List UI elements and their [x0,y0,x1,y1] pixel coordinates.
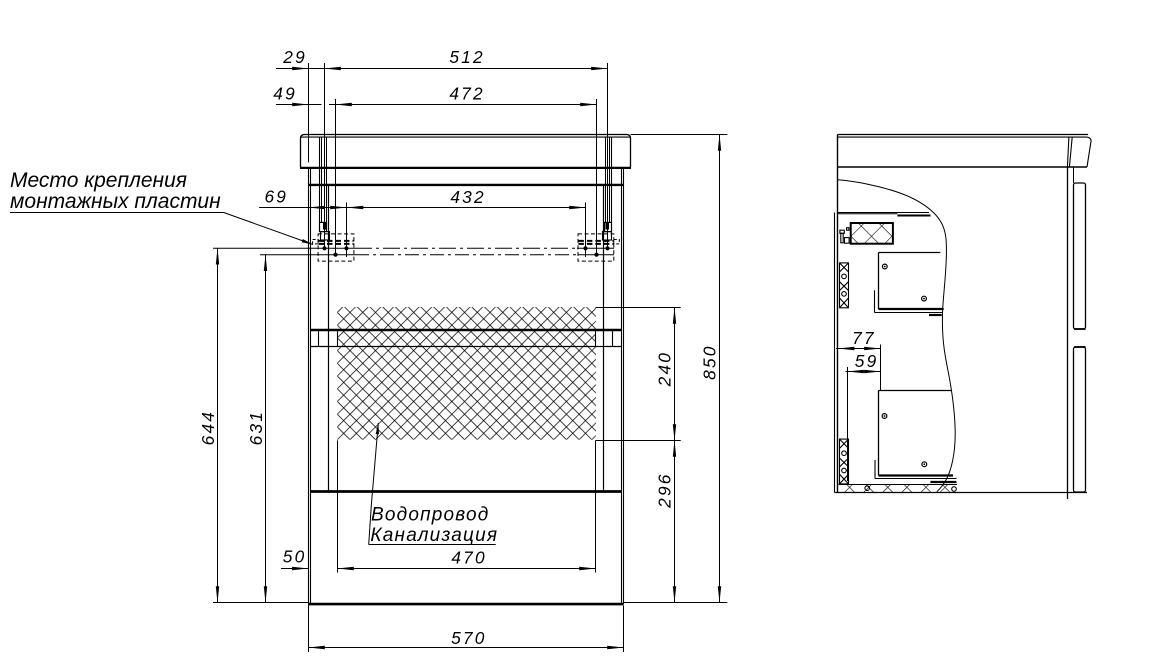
svg-text:монтажных пластин: монтажных пластин [10,190,221,213]
svg-text:432: 432 [450,187,485,207]
svg-text:Место крепления: Место крепления [10,169,187,192]
svg-text:570: 570 [451,628,486,648]
svg-text:470: 470 [451,548,486,568]
svg-text:850: 850 [700,344,720,379]
svg-text:296: 296 [655,472,675,508]
svg-text:29: 29 [282,47,307,67]
svg-text:240: 240 [655,351,675,387]
svg-text:644: 644 [198,410,218,445]
svg-text:Канализация: Канализация [370,525,498,546]
svg-text:Водопровод: Водопровод [371,505,489,526]
svg-text:59: 59 [855,351,879,371]
svg-text:49: 49 [273,84,297,104]
svg-text:77: 77 [852,328,876,348]
svg-text:631: 631 [246,410,266,445]
svg-text:50: 50 [283,547,307,567]
svg-text:512: 512 [449,47,484,67]
svg-text:472: 472 [449,84,484,104]
svg-text:69: 69 [264,187,288,207]
